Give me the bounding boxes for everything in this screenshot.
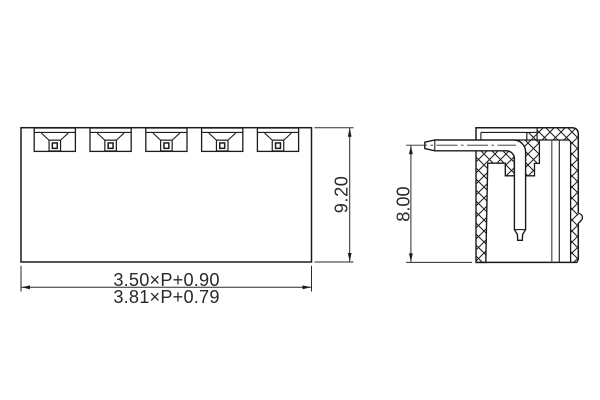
svg-text:3.81×P+0.79: 3.81×P+0.79 [113, 287, 219, 307]
svg-text:8.00: 8.00 [394, 186, 414, 221]
svg-text:9.20: 9.20 [332, 175, 352, 213]
